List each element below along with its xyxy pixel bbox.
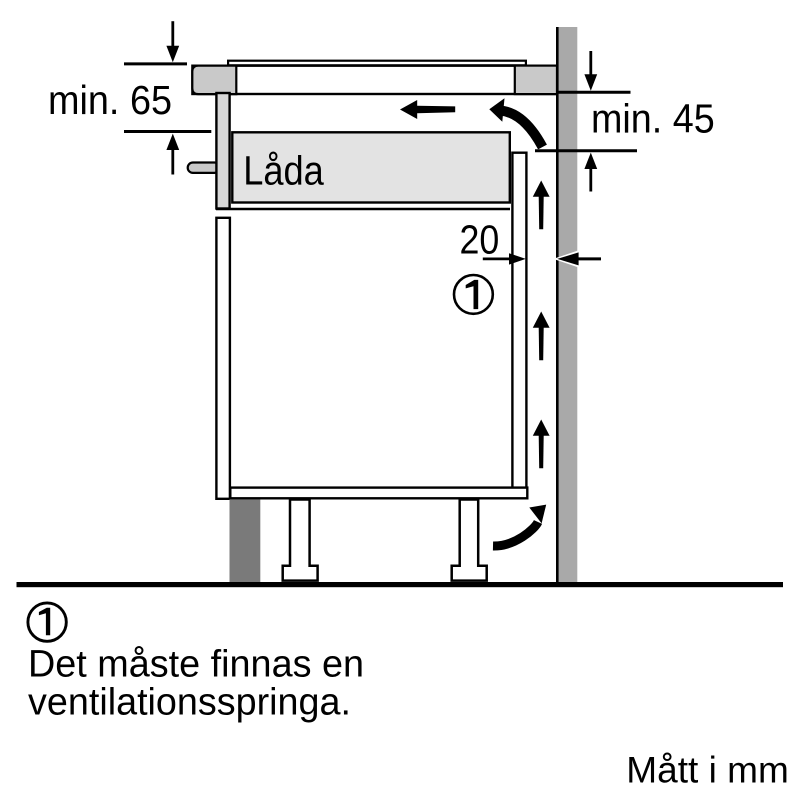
svg-text:ventilationsspringa.: ventilationsspringa.: [28, 681, 351, 723]
svg-text:min. 65: min. 65: [48, 77, 172, 123]
svg-text:20: 20: [460, 217, 500, 263]
svg-text:Låda: Låda: [243, 148, 324, 194]
svg-text:Det måste finnas en: Det måste finnas en: [28, 643, 364, 685]
svg-text:Mått i mm: Mått i mm: [626, 750, 789, 791]
svg-text:min. 45: min. 45: [591, 96, 715, 142]
